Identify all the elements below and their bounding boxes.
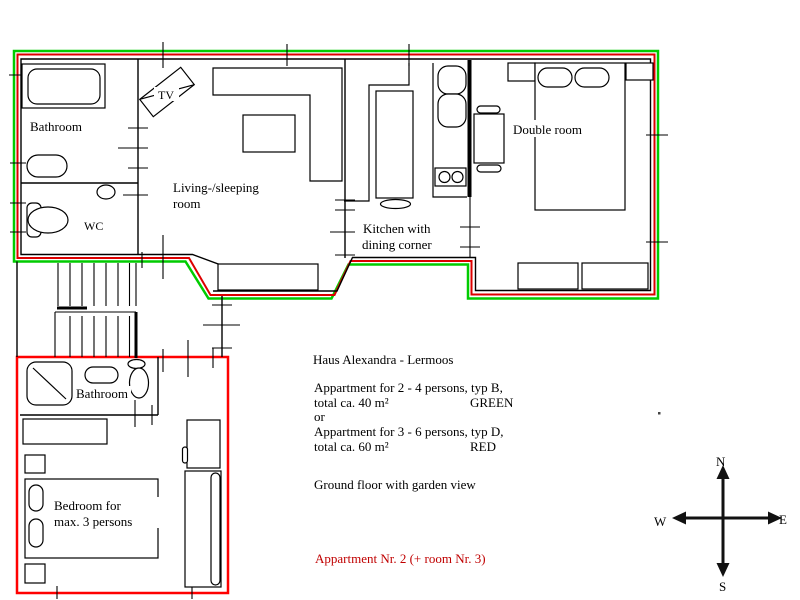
nightstand-icon	[25, 455, 45, 473]
floor-plan-canvas: Bathroom WC TV Living-/sleeping room Kit…	[0, 0, 800, 600]
double-room-label: Double room	[513, 122, 582, 137]
floor-note: Ground floor with garden view	[314, 477, 476, 492]
pillow-icon	[29, 485, 43, 511]
bedroom-label-2: max. 3 persons	[54, 514, 132, 529]
compass-arrow-west	[672, 512, 686, 525]
compass-east-label: E	[779, 512, 787, 527]
kitchen: Kitchen with dining corner	[344, 63, 467, 252]
cabinet-icon	[23, 419, 107, 444]
living-room: TV Living-/sleeping room	[140, 67, 342, 290]
wardrobe-handle-icon	[183, 447, 188, 463]
washbasin-icon	[85, 367, 118, 383]
lower-bedroom: Bedroom for max. 3 persons	[23, 419, 221, 587]
coffee-table-icon	[243, 115, 295, 152]
side-bench-icon	[477, 165, 501, 172]
wardrobe-door-icon	[211, 473, 220, 585]
upper-bathroom: Bathroom WC	[22, 64, 115, 237]
kitchen-sink2-icon	[438, 94, 466, 127]
staircase	[55, 263, 136, 358]
washbasin-icon	[27, 155, 67, 177]
apartment-d-color: RED	[470, 439, 496, 454]
compass-south-label: S	[719, 579, 726, 594]
apartment-b-line2: total ca. 40 m²	[314, 395, 389, 410]
legend-text: Haus Alexandra - Lermoos Appartment for …	[313, 352, 514, 566]
side-bench-icon	[477, 106, 500, 113]
bathtub-basin-icon	[28, 69, 100, 104]
bathroom-lower-label: Bathroom	[76, 386, 128, 401]
nightstand-icon	[626, 63, 653, 80]
apartment-d-line2: total ca. 60 m²	[314, 439, 389, 454]
bathroom-upper-label: Bathroom	[30, 119, 82, 134]
tv-label: TV	[158, 88, 174, 102]
compass-west-label: W	[654, 514, 667, 529]
toilet-tank-icon	[128, 360, 145, 369]
plan-heading: Haus Alexandra - Lermoos	[313, 352, 453, 367]
stool-icon	[381, 200, 411, 209]
legend-or: or	[314, 409, 326, 424]
wardrobe-icon	[582, 263, 648, 289]
toilet-bowl-icon	[28, 207, 68, 233]
apartment-note: Appartment Nr. 2 (+ room Nr. 3)	[315, 551, 486, 566]
apartment-d-line1: Appartment for 3 - 6 persons, typ D,	[314, 424, 504, 439]
living-room-label-2: room	[173, 196, 200, 211]
kitchen-sink-icon	[438, 66, 466, 94]
compass-north-label: N	[716, 454, 726, 469]
apartment-b-line1: Appartment for 2 - 4 persons, typ B,	[314, 380, 503, 395]
bedroom-label-1: Bedroom for	[54, 498, 121, 513]
compass-arrow-south	[717, 563, 730, 577]
kitchen-label-2: dining corner	[362, 237, 432, 252]
pillow-icon	[575, 68, 609, 87]
toilet-bowl-icon	[130, 368, 149, 398]
small-basin-icon	[97, 185, 115, 199]
side-table-icon	[474, 114, 504, 163]
apartment-b-color: GREEN	[470, 395, 514, 410]
double-room: Double room	[474, 63, 653, 289]
kitchen-label-1: Kitchen with	[363, 221, 431, 236]
lower-bathroom: Bathroom	[27, 360, 149, 406]
wardrobe-icon	[187, 420, 220, 468]
wc-label: WC	[84, 219, 103, 233]
nightstand-icon	[25, 564, 45, 583]
dining-table-icon	[376, 91, 413, 198]
wardrobe-icon	[518, 263, 578, 289]
pillow-icon	[538, 68, 572, 87]
stray-dot	[658, 412, 661, 415]
bay-bench-icon	[218, 264, 318, 290]
living-room-label-1: Living-/sleeping	[173, 180, 259, 195]
nightstand-icon	[508, 63, 535, 81]
pillow-icon	[29, 519, 43, 547]
floor-plan-page: Bathroom WC TV Living-/sleeping room Kit…	[0, 0, 800, 600]
compass-icon: N S W E	[654, 454, 787, 594]
